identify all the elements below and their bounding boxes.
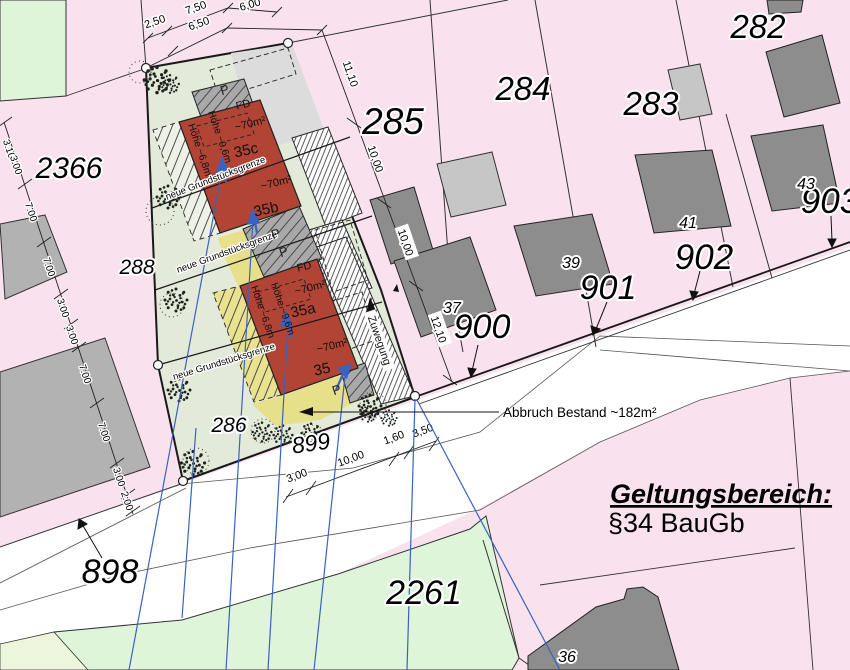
svg-text:43: 43 bbox=[797, 176, 815, 193]
svg-text:2261: 2261 bbox=[385, 574, 462, 612]
svg-text:282: 282 bbox=[729, 8, 785, 45]
svg-text:284: 284 bbox=[494, 70, 550, 107]
svg-text:288: 288 bbox=[118, 256, 154, 279]
svg-text:285: 285 bbox=[361, 101, 424, 142]
svg-text:36: 36 bbox=[558, 649, 576, 666]
svg-text:37: 37 bbox=[443, 300, 462, 317]
svg-text:35: 35 bbox=[312, 360, 332, 380]
svg-text:Geltungsbereich:: Geltungsbereich: bbox=[610, 479, 832, 509]
svg-text:899: 899 bbox=[290, 428, 332, 459]
svg-text:2366: 2366 bbox=[35, 152, 103, 185]
svg-text:900: 900 bbox=[454, 308, 511, 346]
svg-text:286: 286 bbox=[210, 414, 246, 437]
svg-text:§34 BauGb: §34 BauGb bbox=[608, 508, 745, 538]
svg-text:902: 902 bbox=[675, 238, 733, 277]
svg-text:283: 283 bbox=[622, 85, 679, 122]
svg-text:41: 41 bbox=[679, 215, 697, 232]
svg-text:39: 39 bbox=[562, 255, 580, 272]
svg-text:Abbruch Bestand ~182m²: Abbruch Bestand ~182m² bbox=[503, 405, 657, 420]
svg-text:898: 898 bbox=[82, 553, 139, 591]
svg-text:901: 901 bbox=[580, 269, 637, 307]
